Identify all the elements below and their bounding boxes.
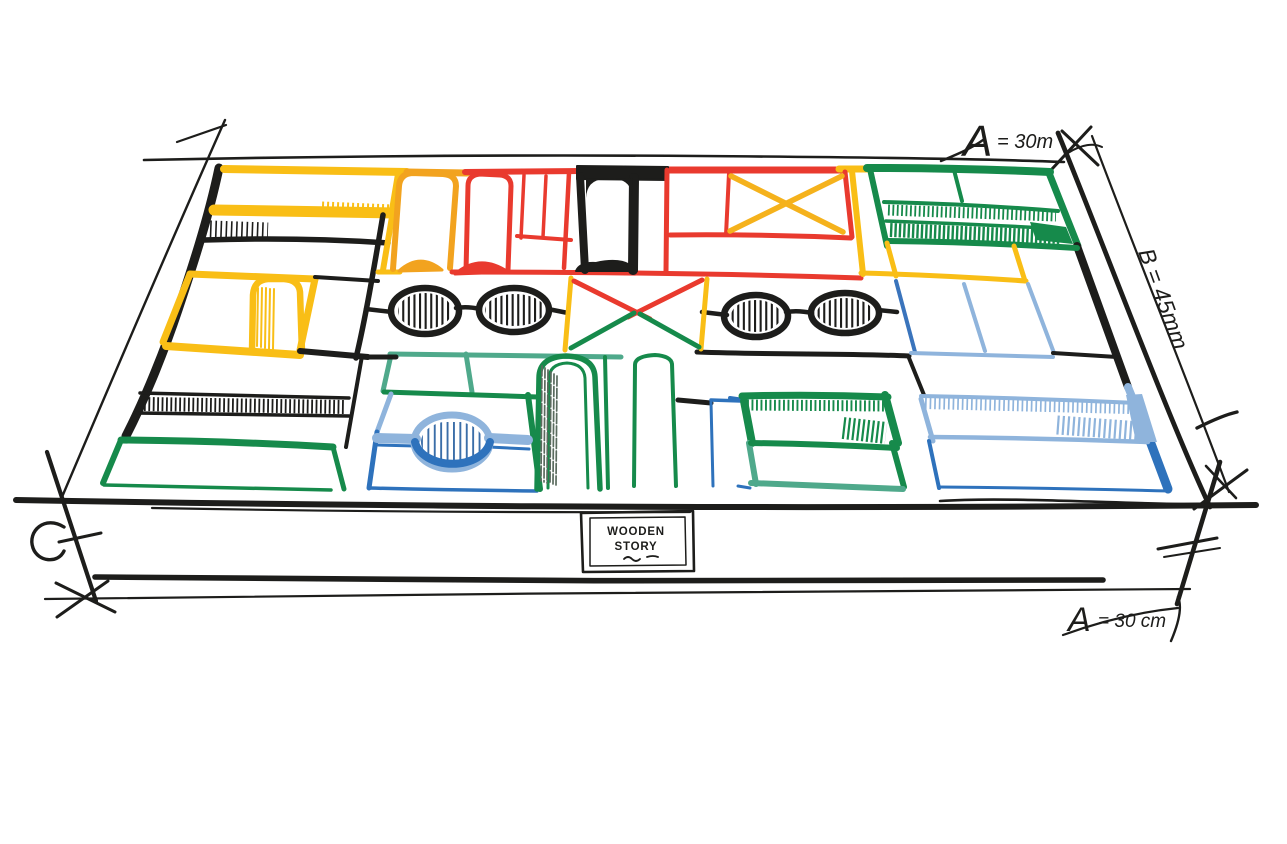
svg-text:= 30m: = 30m: [997, 131, 1053, 153]
svg-text:A: A: [1066, 601, 1091, 639]
svg-text:= 30 cm: = 30 cm: [1098, 611, 1166, 632]
svg-text:A: A: [960, 117, 992, 166]
svg-text:B = 45mm: B = 45mm: [1133, 245, 1194, 353]
svg-text:WOODEN: WOODEN: [607, 526, 665, 538]
svg-text:STORY: STORY: [615, 541, 658, 553]
